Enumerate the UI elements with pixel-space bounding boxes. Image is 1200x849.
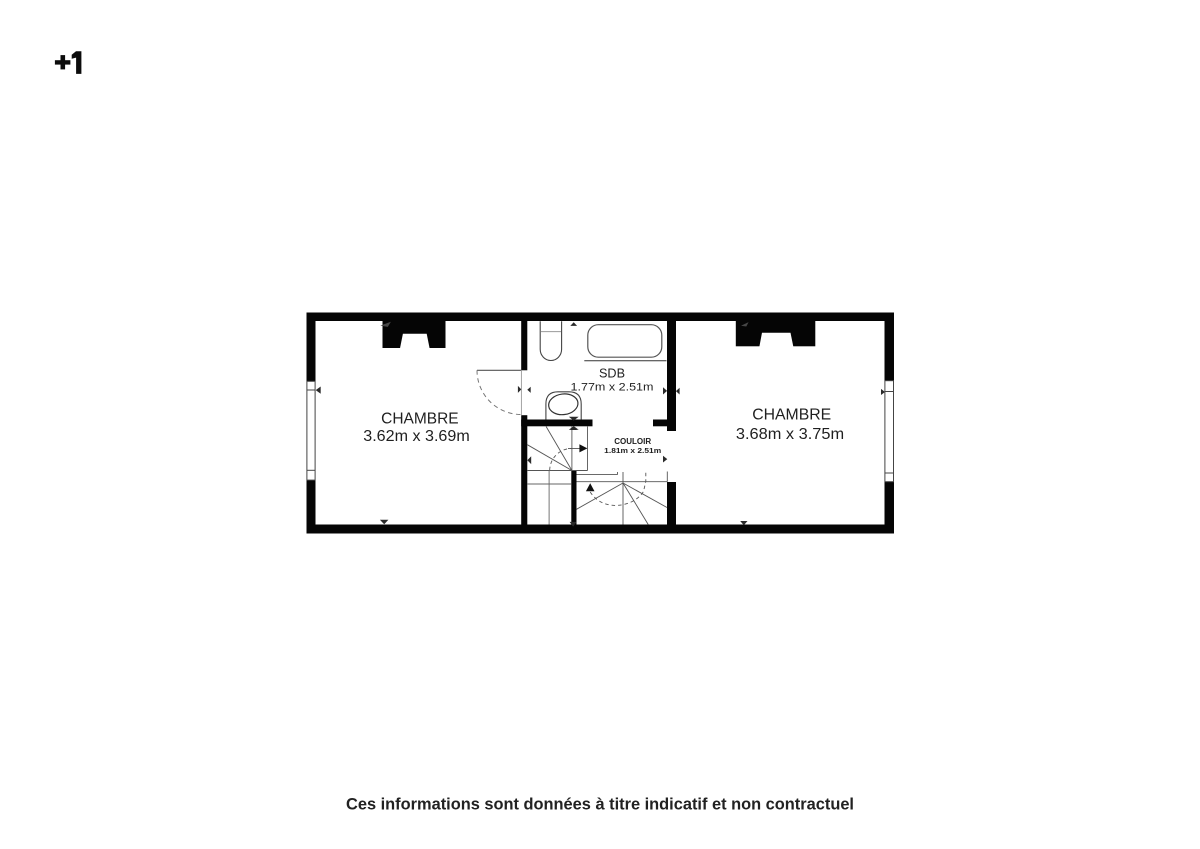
svg-text:SDB: SDB: [599, 367, 625, 381]
svg-text:3.62m x 3.69m: 3.62m x 3.69m: [363, 428, 470, 445]
svg-text:Ces informations sont données: Ces informations sont données à titre in…: [346, 795, 854, 814]
svg-text:CHAMBRE: CHAMBRE: [752, 407, 831, 424]
svg-text:1.77m x 2.51m: 1.77m x 2.51m: [571, 382, 654, 394]
svg-text:1.81m x 2.51m: 1.81m x 2.51m: [604, 446, 661, 455]
svg-text:3.68m x 3.75m: 3.68m x 3.75m: [736, 426, 844, 443]
svg-text:CHAMBRE: CHAMBRE: [381, 410, 459, 427]
svg-text:COULOIR: COULOIR: [614, 436, 652, 446]
